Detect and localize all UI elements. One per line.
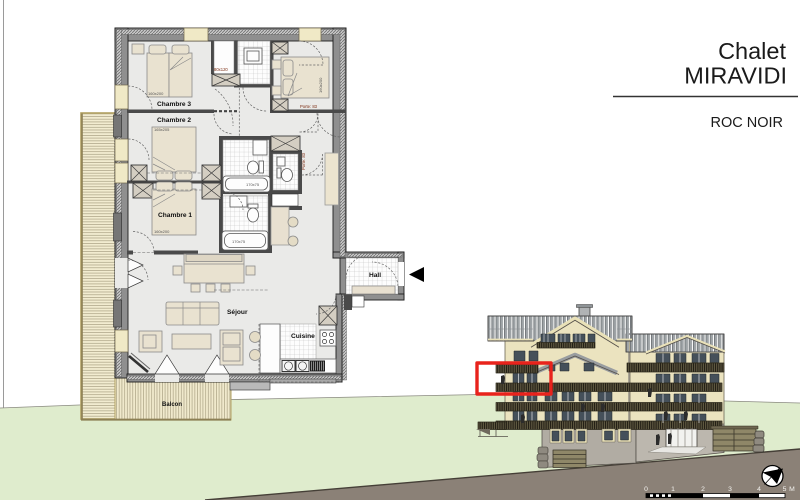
svg-text:Chalet: Chalet — [718, 38, 786, 64]
svg-text:0: 0 — [644, 486, 648, 493]
svg-text:165x205: 165x205 — [154, 127, 170, 132]
svg-text:Chambre 2: Chambre 2 — [157, 117, 191, 124]
svg-text:MIRAVIDI: MIRAVIDI — [684, 63, 787, 89]
svg-text:160x200: 160x200 — [148, 91, 164, 96]
svg-text:Balcon: Balcon — [162, 402, 182, 408]
svg-text:80x120: 80x120 — [214, 67, 228, 72]
svg-text:170x75: 170x75 — [246, 182, 260, 187]
svg-text:Cuisine: Cuisine — [291, 333, 315, 340]
svg-text:Porte: 83: Porte: 83 — [301, 152, 306, 170]
svg-text:Chambre 3: Chambre 3 — [157, 101, 191, 108]
svg-text:160x200: 160x200 — [154, 229, 170, 234]
svg-text:5: 5 — [783, 486, 787, 493]
svg-text:3: 3 — [728, 486, 732, 493]
svg-text:4: 4 — [757, 486, 761, 493]
svg-text:170x75: 170x75 — [232, 239, 246, 244]
svg-text:Séjour: Séjour — [227, 309, 248, 316]
svg-text:2: 2 — [701, 486, 705, 493]
svg-text:1: 1 — [671, 486, 675, 493]
svg-text:Porte: 83: Porte: 83 — [300, 104, 318, 109]
svg-text:160x200: 160x200 — [318, 77, 323, 93]
svg-text:M: M — [789, 486, 795, 493]
svg-text:ROC NOIR: ROC NOIR — [711, 115, 784, 131]
svg-text:Hall: Hall — [369, 272, 381, 279]
svg-text:Chambre 1: Chambre 1 — [158, 212, 192, 219]
